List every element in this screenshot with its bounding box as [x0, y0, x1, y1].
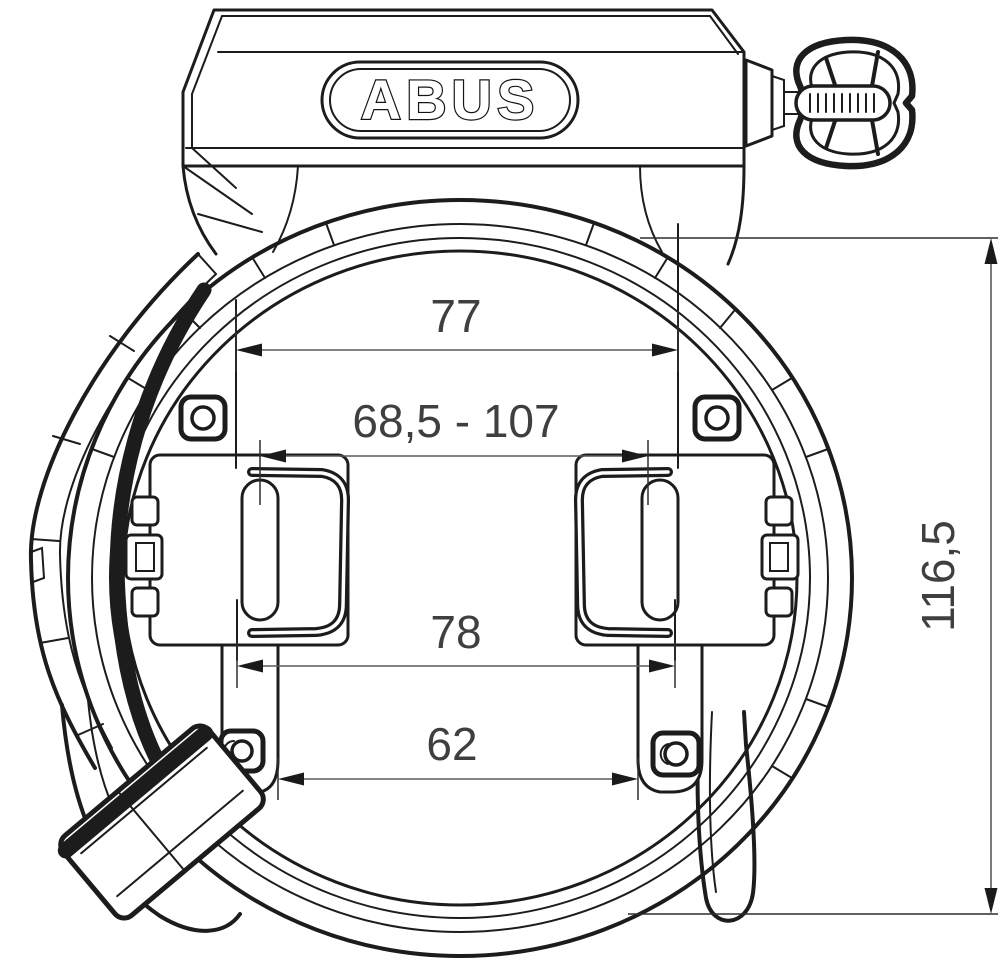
- dim-mid-width-label: 78: [430, 606, 481, 658]
- key: [746, 40, 912, 166]
- logo-text: ABUS: [361, 68, 540, 131]
- bracket-right-clip-bottom: [766, 588, 792, 616]
- dim-mount-range-label: 68,5 - 107: [352, 395, 559, 447]
- bracket-left-latch: [126, 535, 162, 579]
- dimension-62: 62: [278, 718, 638, 800]
- bracket-left-clip-top: [132, 497, 158, 525]
- bolt-channel-hook: [698, 702, 755, 921]
- key-cylinder-mount: [746, 60, 772, 146]
- dim-bottom-width-label: 62: [426, 718, 477, 770]
- dimension-77: 77: [236, 290, 678, 372]
- mount-hole-top-right: [695, 397, 739, 439]
- bracket-right-latch: [762, 535, 798, 579]
- mount-hole-bottom-right: [653, 733, 699, 775]
- bracket-left-clip-bottom: [132, 588, 158, 616]
- dim-height-label: 116,5: [912, 520, 964, 632]
- bracket-right-clip-top: [766, 497, 792, 525]
- dim-top-width-label: 77: [430, 290, 481, 342]
- drawing-canvas: ABUS: [0, 0, 1000, 966]
- mount-hole-top-left: [181, 397, 225, 439]
- frame-lock-technical-drawing: ABUS: [0, 0, 1000, 966]
